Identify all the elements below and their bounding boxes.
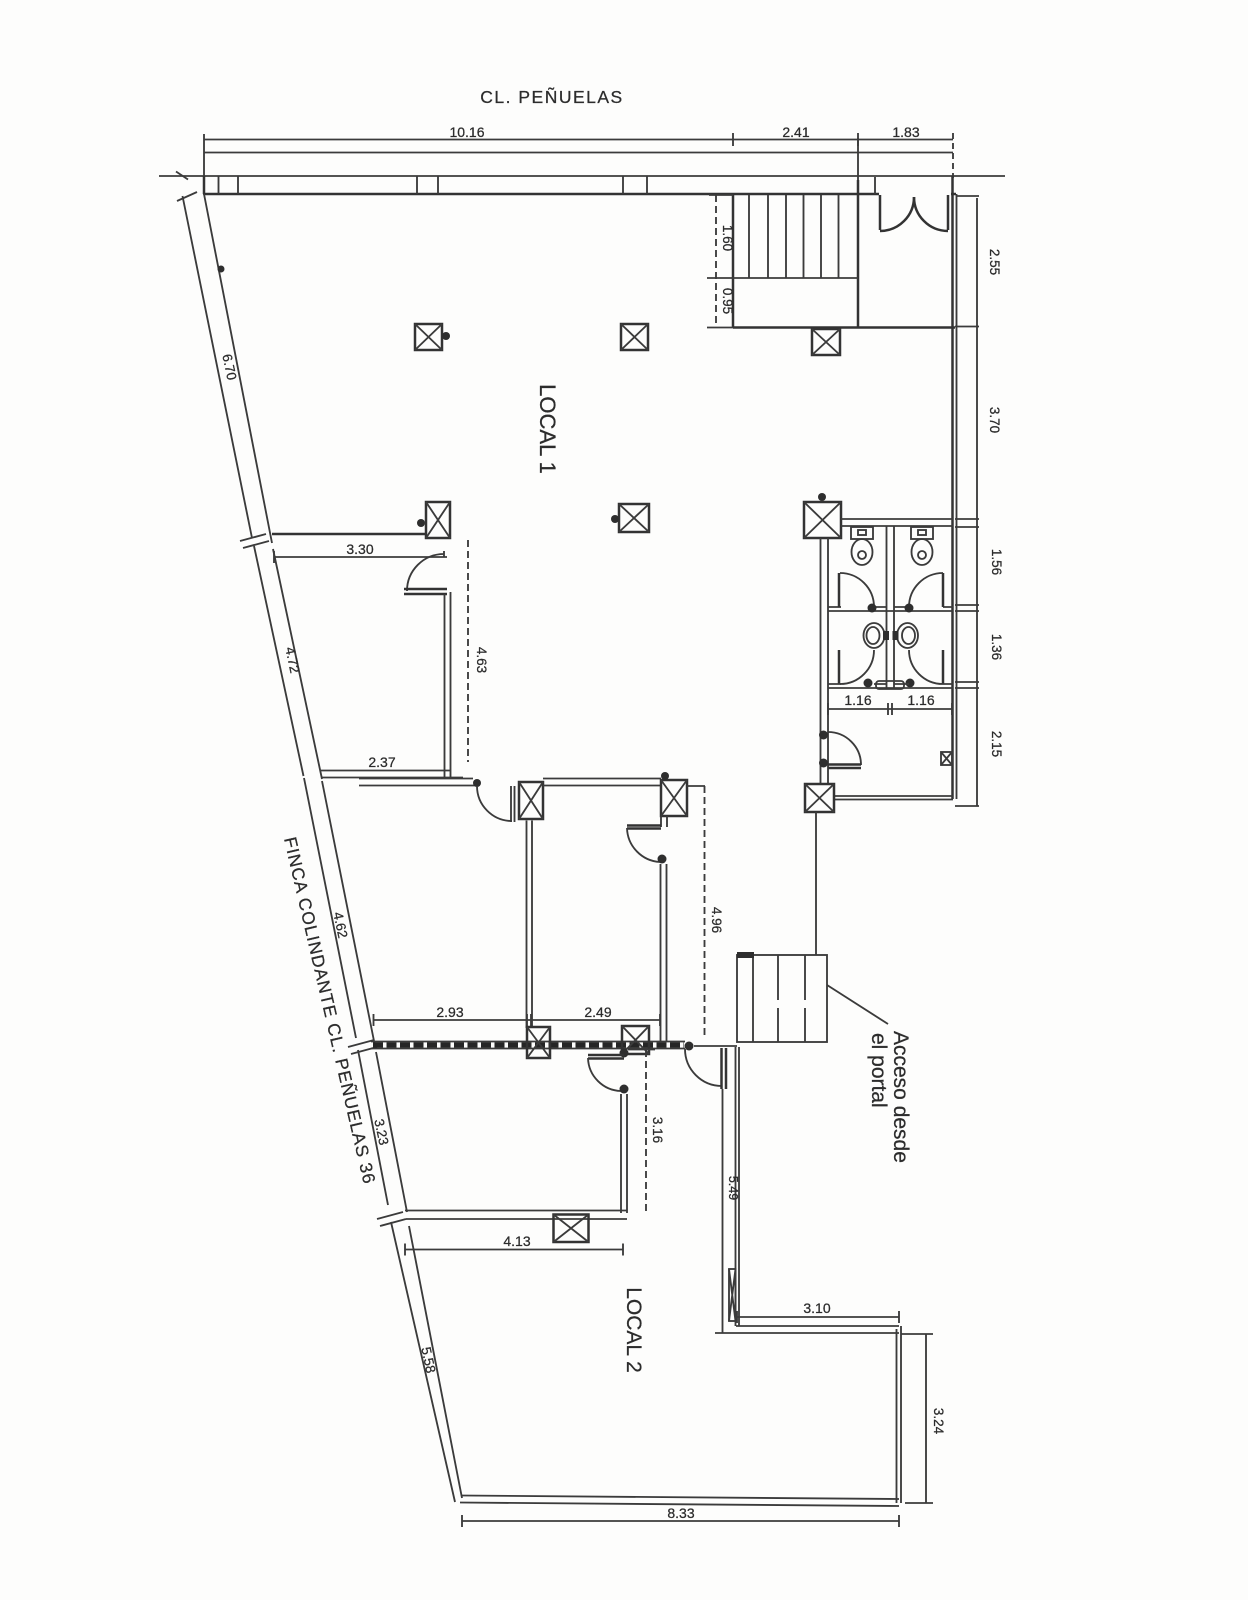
svg-text:Acceso desde: Acceso desde	[889, 1031, 912, 1163]
svg-text:3.16: 3.16	[650, 1117, 665, 1143]
svg-text:1.16: 1.16	[907, 692, 934, 708]
svg-text:LOCAL 2: LOCAL 2	[622, 1287, 645, 1373]
svg-text:el portal: el portal	[867, 1033, 890, 1108]
svg-text:2.41: 2.41	[782, 124, 809, 140]
svg-text:3.24: 3.24	[931, 1408, 946, 1435]
svg-text:2.37: 2.37	[368, 754, 395, 770]
svg-text:3.30: 3.30	[346, 541, 373, 557]
svg-text:10.16: 10.16	[449, 124, 484, 140]
svg-text:2.55: 2.55	[987, 249, 1002, 275]
svg-text:5.49: 5.49	[726, 1176, 740, 1200]
svg-text:1.83: 1.83	[892, 124, 919, 140]
svg-text:2.15: 2.15	[989, 731, 1004, 757]
svg-text:LOCAL 1: LOCAL 1	[535, 384, 560, 474]
svg-text:4.13: 4.13	[503, 1233, 530, 1249]
svg-text:8.33: 8.33	[667, 1505, 694, 1521]
svg-text:2.49: 2.49	[584, 1004, 611, 1020]
svg-text:1.16: 1.16	[844, 692, 871, 708]
svg-text:CL. PEÑUELAS: CL. PEÑUELAS	[480, 86, 623, 107]
svg-text:1.36: 1.36	[989, 634, 1004, 660]
svg-text:0.95: 0.95	[720, 288, 735, 314]
svg-text:4.63: 4.63	[474, 647, 489, 673]
svg-text:3.70: 3.70	[987, 407, 1002, 433]
svg-text:3.10: 3.10	[803, 1300, 830, 1316]
svg-text:2.93: 2.93	[436, 1004, 463, 1020]
svg-text:4.96: 4.96	[709, 907, 724, 933]
svg-text:1.60: 1.60	[720, 225, 735, 251]
svg-text:1.56: 1.56	[989, 549, 1004, 575]
